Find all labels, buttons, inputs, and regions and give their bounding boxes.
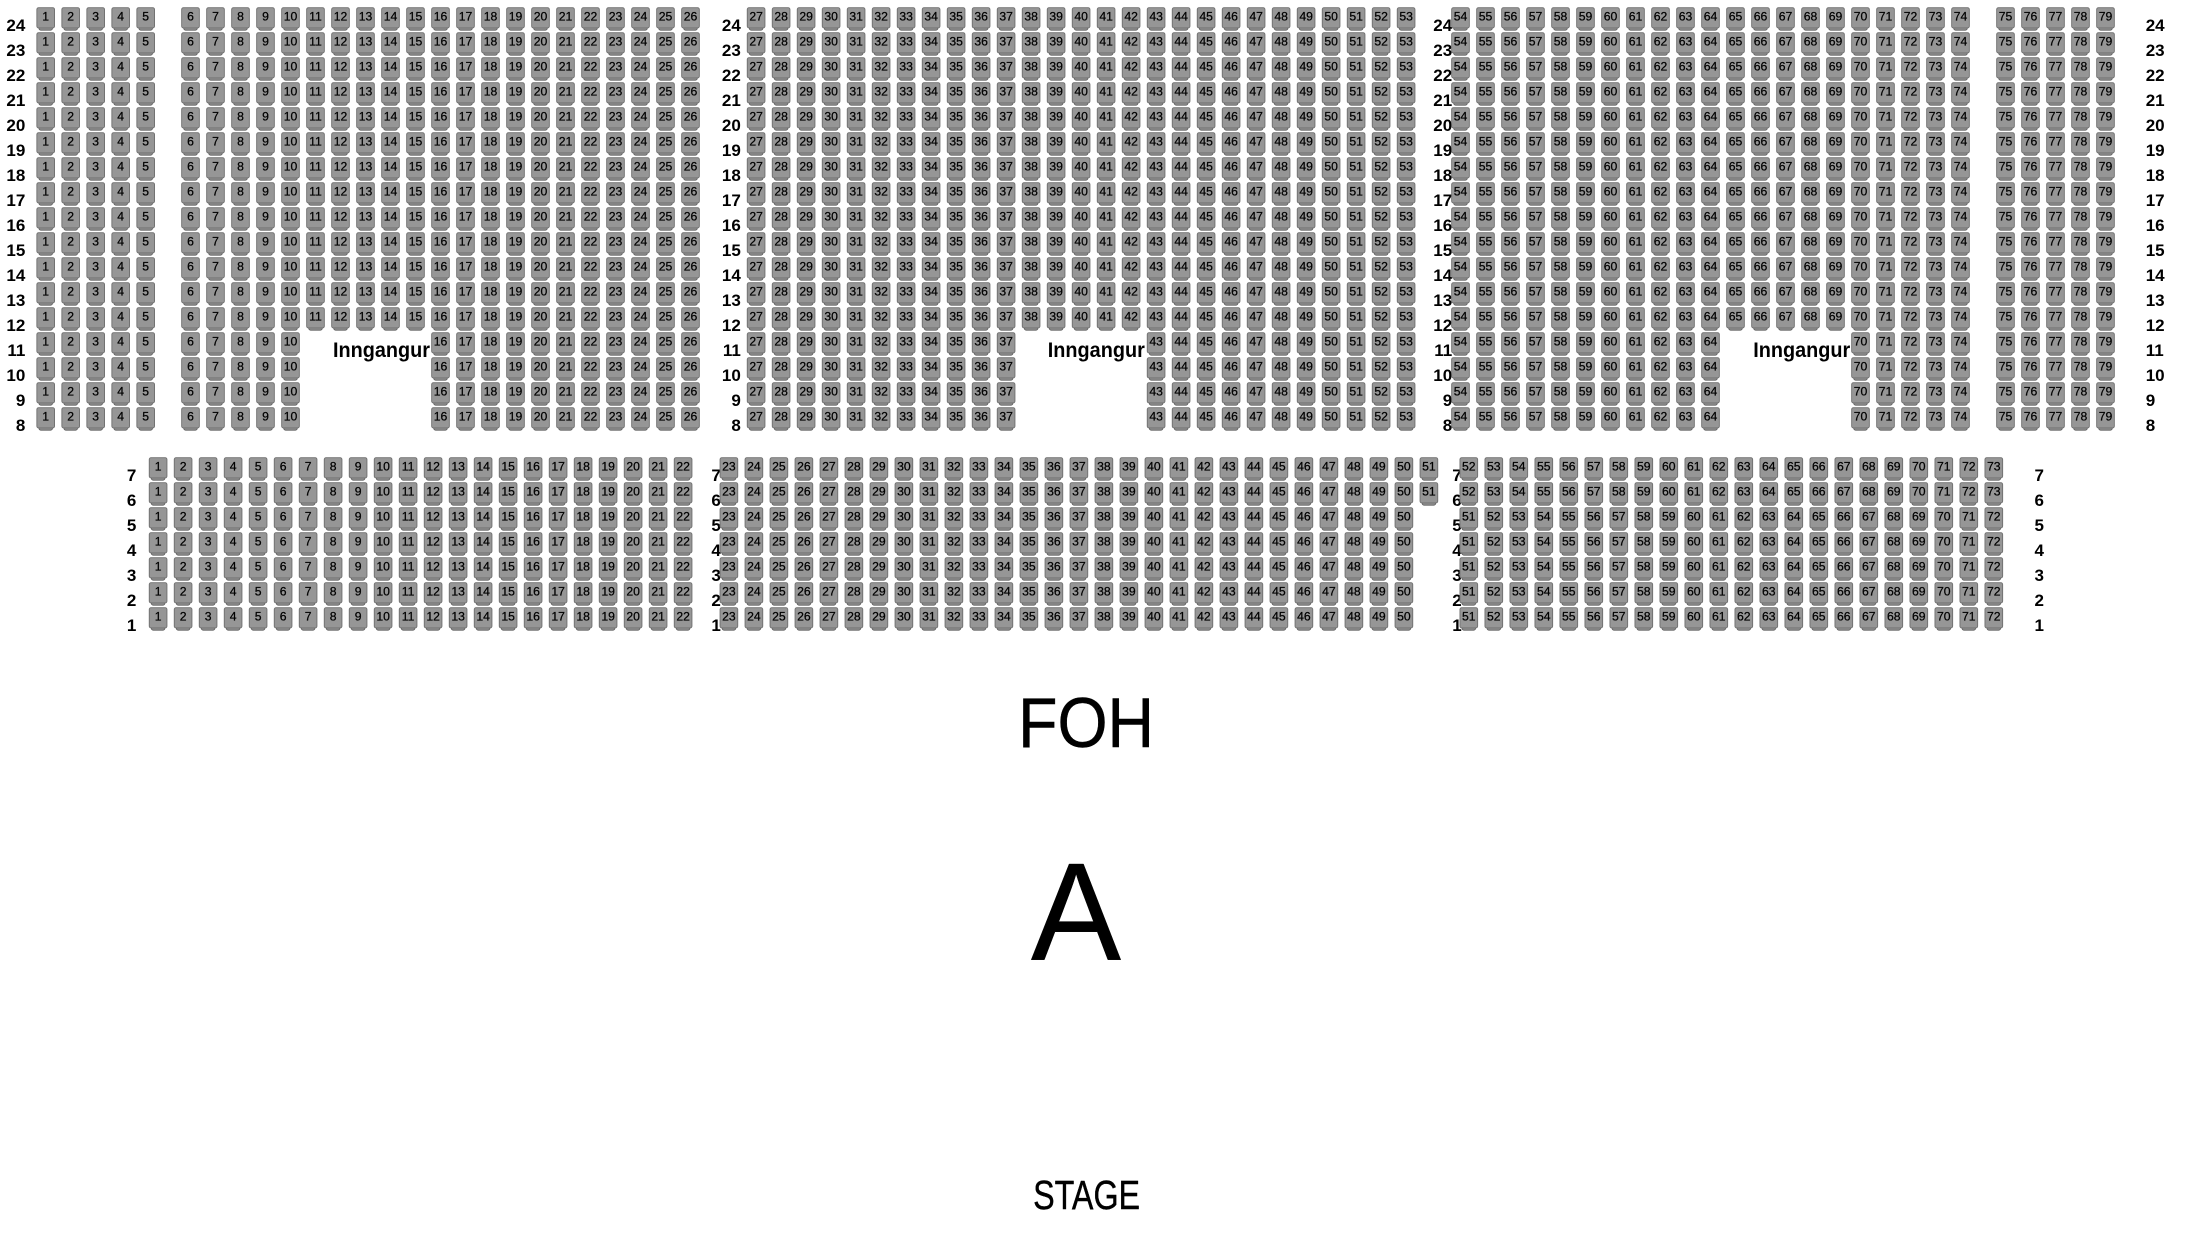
svg-text:9: 9 [262,85,269,99]
svg-text:76: 76 [2024,285,2038,299]
svg-text:20: 20 [534,410,548,424]
svg-text:40: 40 [1074,235,1088,249]
svg-text:23: 23 [609,335,623,349]
svg-text:11: 11 [309,85,322,99]
svg-text:50: 50 [1324,185,1338,199]
svg-text:13: 13 [2146,291,2165,310]
svg-text:32: 32 [947,485,961,499]
svg-text:79: 79 [2099,235,2113,249]
svg-text:67: 67 [1779,60,1793,74]
svg-text:65: 65 [1729,185,1743,199]
svg-text:75: 75 [1999,260,2013,274]
svg-text:34: 34 [997,610,1011,624]
svg-text:6: 6 [187,260,194,274]
svg-text:57: 57 [1529,185,1543,199]
svg-text:55: 55 [1479,410,1493,424]
svg-text:48: 48 [1347,585,1361,599]
svg-text:3: 3 [205,610,212,624]
svg-text:62: 62 [1654,10,1668,24]
svg-text:29: 29 [799,285,813,299]
svg-text:71: 71 [1937,460,1951,474]
svg-text:47: 47 [1322,510,1336,524]
svg-text:8: 8 [237,385,244,399]
svg-text:68: 68 [1862,485,1876,499]
svg-text:2: 2 [67,110,74,124]
svg-text:78: 78 [2074,35,2088,49]
svg-text:4: 4 [117,285,124,299]
svg-text:77: 77 [2049,60,2063,74]
svg-text:62: 62 [1654,410,1668,424]
svg-text:42: 42 [1197,485,1211,499]
svg-text:31: 31 [849,285,863,299]
svg-text:37: 37 [999,210,1013,224]
svg-text:19: 19 [509,35,523,49]
svg-text:33: 33 [972,485,986,499]
svg-text:46: 46 [1224,235,1238,249]
svg-text:66: 66 [1754,110,1768,124]
svg-text:26: 26 [797,610,811,624]
svg-text:67: 67 [1779,10,1793,24]
svg-text:3: 3 [92,135,99,149]
svg-text:12: 12 [334,235,348,249]
svg-text:71: 71 [1879,135,1893,149]
svg-text:62: 62 [1654,310,1668,324]
svg-text:24: 24 [634,10,648,24]
svg-text:68: 68 [1804,135,1818,149]
svg-text:23: 23 [609,160,623,174]
svg-text:75: 75 [1999,110,2013,124]
svg-text:56: 56 [1504,310,1518,324]
svg-text:30: 30 [824,360,838,374]
svg-text:6: 6 [187,35,194,49]
svg-text:17: 17 [459,110,473,124]
svg-text:39: 39 [1049,135,1063,149]
svg-text:55: 55 [1537,485,1551,499]
svg-text:56: 56 [1587,560,1601,574]
svg-text:74: 74 [1954,385,1968,399]
svg-text:24: 24 [747,485,761,499]
svg-text:47: 47 [1322,485,1336,499]
svg-text:27: 27 [822,510,836,524]
svg-text:41: 41 [1099,260,1113,274]
svg-text:18: 18 [484,210,498,224]
svg-text:71: 71 [1879,410,1893,424]
svg-text:34: 34 [997,535,1011,549]
svg-text:70: 70 [1854,285,1868,299]
svg-text:30: 30 [824,10,838,24]
svg-text:59: 59 [1579,360,1593,374]
svg-text:9: 9 [262,360,269,374]
svg-text:47: 47 [1322,585,1336,599]
svg-text:45: 45 [1199,335,1213,349]
svg-text:71: 71 [1962,535,1976,549]
svg-text:48: 48 [1274,235,1288,249]
svg-text:62: 62 [1654,110,1668,124]
svg-text:31: 31 [849,235,863,249]
svg-text:8: 8 [237,335,244,349]
svg-text:65: 65 [1729,85,1743,99]
svg-text:40: 40 [1074,110,1088,124]
svg-text:70: 70 [1854,135,1868,149]
svg-text:30: 30 [824,410,838,424]
svg-text:12: 12 [426,510,440,524]
svg-text:70: 70 [1854,410,1868,424]
svg-text:3: 3 [127,566,136,585]
svg-text:10: 10 [376,460,390,474]
svg-text:29: 29 [799,10,813,24]
svg-text:65: 65 [1812,610,1826,624]
svg-text:7: 7 [711,466,720,485]
svg-text:29: 29 [799,235,813,249]
svg-text:12: 12 [426,535,440,549]
svg-text:3: 3 [92,310,99,324]
svg-text:45: 45 [1272,485,1286,499]
svg-text:20: 20 [534,135,548,149]
svg-text:29: 29 [799,60,813,74]
svg-text:43: 43 [1149,360,1163,374]
svg-text:1: 1 [42,360,49,374]
svg-text:61: 61 [1629,335,1643,349]
svg-text:7: 7 [212,310,219,324]
svg-text:59: 59 [1662,585,1676,599]
svg-text:20: 20 [626,560,640,574]
svg-text:58: 58 [1554,185,1568,199]
svg-text:61: 61 [1629,360,1643,374]
svg-text:77: 77 [2049,335,2063,349]
svg-text:14: 14 [2146,266,2165,285]
svg-text:29: 29 [799,160,813,174]
svg-text:24: 24 [634,235,648,249]
svg-text:46: 46 [1224,385,1238,399]
svg-text:29: 29 [799,35,813,49]
svg-text:23: 23 [609,210,623,224]
svg-text:15: 15 [409,35,423,49]
svg-text:38: 38 [1024,135,1038,149]
svg-text:22: 22 [584,160,598,174]
svg-text:44: 44 [1174,185,1188,199]
svg-text:55: 55 [1479,260,1493,274]
svg-text:48: 48 [1347,510,1361,524]
svg-text:27: 27 [749,135,763,149]
svg-text:49: 49 [1299,110,1313,124]
svg-text:61: 61 [1629,410,1643,424]
svg-text:6: 6 [711,491,720,510]
svg-text:8: 8 [237,310,244,324]
svg-text:36: 36 [974,335,988,349]
svg-text:9: 9 [262,160,269,174]
svg-text:65: 65 [1812,560,1826,574]
svg-text:45: 45 [1199,35,1213,49]
svg-text:64: 64 [1787,610,1801,624]
svg-text:57: 57 [1612,560,1626,574]
svg-text:41: 41 [1172,535,1186,549]
svg-text:46: 46 [1224,210,1238,224]
svg-text:46: 46 [1224,360,1238,374]
svg-text:26: 26 [797,560,811,574]
svg-text:24: 24 [634,385,648,399]
svg-text:48: 48 [1274,35,1288,49]
svg-text:45: 45 [1199,210,1213,224]
svg-text:8: 8 [237,35,244,49]
svg-text:73: 73 [1929,260,1943,274]
svg-text:6: 6 [280,510,287,524]
svg-text:11: 11 [309,310,322,324]
svg-text:67: 67 [1862,610,1876,624]
svg-text:24: 24 [634,135,648,149]
svg-text:38: 38 [1097,485,1111,499]
svg-text:16: 16 [434,185,448,199]
svg-text:8: 8 [330,460,337,474]
svg-text:2: 2 [67,285,74,299]
svg-text:37: 37 [999,285,1013,299]
svg-text:64: 64 [1704,285,1718,299]
svg-text:28: 28 [774,385,788,399]
svg-text:67: 67 [1779,185,1793,199]
svg-text:22: 22 [584,285,598,299]
svg-text:48: 48 [1347,610,1361,624]
svg-text:25: 25 [659,110,673,124]
svg-text:36: 36 [974,410,988,424]
svg-text:77: 77 [2049,285,2063,299]
svg-text:27: 27 [822,585,836,599]
svg-text:1: 1 [42,260,49,274]
svg-text:43: 43 [1149,335,1163,349]
svg-text:5: 5 [127,516,136,535]
svg-text:Inngangur: Inngangur [1048,339,1145,362]
svg-text:54: 54 [1537,585,1551,599]
svg-text:32: 32 [874,285,888,299]
svg-text:43: 43 [1149,185,1163,199]
svg-text:52: 52 [1374,310,1388,324]
svg-text:9: 9 [355,560,362,574]
svg-text:78: 78 [2074,60,2088,74]
svg-text:11: 11 [309,35,322,49]
svg-text:22: 22 [584,310,598,324]
svg-text:76: 76 [2024,60,2038,74]
svg-text:18: 18 [576,610,590,624]
svg-text:45: 45 [1199,260,1213,274]
svg-text:STAGE: STAGE [1033,1172,1140,1218]
svg-text:70: 70 [1854,60,1868,74]
svg-text:40: 40 [1147,535,1161,549]
svg-text:6: 6 [187,160,194,174]
svg-text:57: 57 [1612,535,1626,549]
svg-text:66: 66 [1754,185,1768,199]
svg-text:77: 77 [2049,10,2063,24]
svg-text:54: 54 [1454,310,1468,324]
svg-text:71: 71 [1962,510,1976,524]
svg-text:54: 54 [1454,410,1468,424]
svg-text:74: 74 [1954,260,1968,274]
svg-text:61: 61 [1629,35,1643,49]
svg-text:14: 14 [722,266,741,285]
svg-text:21: 21 [651,585,665,599]
svg-text:68: 68 [1887,535,1901,549]
svg-text:18: 18 [484,360,498,374]
svg-text:79: 79 [2099,410,2113,424]
svg-text:1: 1 [155,535,162,549]
svg-text:56: 56 [1504,360,1518,374]
svg-text:73: 73 [1929,310,1943,324]
svg-text:79: 79 [2099,360,2113,374]
svg-text:68: 68 [1862,460,1876,474]
svg-text:17: 17 [459,185,473,199]
svg-text:70: 70 [1854,110,1868,124]
svg-text:39: 39 [1122,610,1136,624]
svg-text:12: 12 [334,310,348,324]
svg-text:73: 73 [1929,85,1943,99]
svg-text:18: 18 [576,510,590,524]
svg-text:19: 19 [601,535,615,549]
svg-text:3: 3 [205,585,212,599]
svg-text:28: 28 [774,35,788,49]
svg-text:62: 62 [1737,510,1751,524]
svg-text:25: 25 [659,235,673,249]
svg-text:42: 42 [1124,60,1138,74]
svg-text:19: 19 [509,160,523,174]
svg-text:42: 42 [1197,510,1211,524]
svg-text:74: 74 [1954,285,1968,299]
svg-text:19: 19 [601,510,615,524]
svg-text:16: 16 [434,260,448,274]
svg-text:65: 65 [1729,10,1743,24]
svg-text:68: 68 [1887,610,1901,624]
svg-text:68: 68 [1804,60,1818,74]
svg-text:64: 64 [1704,310,1718,324]
svg-text:48: 48 [1274,135,1288,149]
svg-text:50: 50 [1397,585,1411,599]
svg-text:79: 79 [2099,10,2113,24]
svg-text:7: 7 [212,260,219,274]
svg-text:9: 9 [262,285,269,299]
svg-text:18: 18 [484,35,498,49]
svg-text:65: 65 [1729,160,1743,174]
svg-text:45: 45 [1272,610,1286,624]
svg-text:26: 26 [684,85,698,99]
svg-text:39: 39 [1122,535,1136,549]
svg-text:28: 28 [774,285,788,299]
svg-text:36: 36 [974,110,988,124]
svg-text:6: 6 [187,235,194,249]
svg-text:27: 27 [822,485,836,499]
svg-text:52: 52 [1374,360,1388,374]
svg-text:53: 53 [1399,285,1413,299]
svg-text:6: 6 [280,560,287,574]
svg-text:79: 79 [2099,335,2113,349]
svg-text:5: 5 [2035,516,2044,535]
svg-text:18: 18 [722,166,741,185]
svg-text:29: 29 [799,260,813,274]
svg-text:62: 62 [1712,485,1726,499]
svg-text:64: 64 [1704,110,1718,124]
svg-text:7: 7 [212,385,219,399]
svg-text:27: 27 [749,35,763,49]
svg-text:69: 69 [1829,85,1843,99]
svg-text:1: 1 [155,610,162,624]
svg-text:7: 7 [212,10,219,24]
svg-text:28: 28 [774,310,788,324]
svg-text:50: 50 [1324,10,1338,24]
svg-text:48: 48 [1274,160,1288,174]
svg-text:33: 33 [899,110,913,124]
svg-text:63: 63 [1679,110,1693,124]
svg-text:52: 52 [1374,135,1388,149]
svg-text:66: 66 [1754,285,1768,299]
svg-text:45: 45 [1199,360,1213,374]
svg-text:47: 47 [1249,385,1263,399]
svg-text:59: 59 [1579,85,1593,99]
svg-text:56: 56 [1504,10,1518,24]
svg-text:63: 63 [1679,260,1693,274]
svg-text:34: 34 [924,335,938,349]
svg-text:14: 14 [384,135,398,149]
svg-text:58: 58 [1612,460,1626,474]
svg-text:50: 50 [1324,235,1338,249]
svg-text:2: 2 [180,585,187,599]
svg-text:16: 16 [434,285,448,299]
svg-text:75: 75 [1999,410,2013,424]
svg-text:44: 44 [1247,510,1261,524]
svg-text:8: 8 [330,585,337,599]
svg-text:49: 49 [1372,585,1386,599]
svg-text:16: 16 [526,610,540,624]
svg-text:14: 14 [476,485,490,499]
svg-text:29: 29 [872,485,886,499]
svg-text:64: 64 [1787,560,1801,574]
svg-text:43: 43 [1149,385,1163,399]
svg-text:66: 66 [1754,210,1768,224]
svg-text:7: 7 [212,335,219,349]
svg-text:48: 48 [1347,460,1361,474]
svg-text:16: 16 [434,160,448,174]
svg-text:29: 29 [872,460,886,474]
svg-text:35: 35 [949,160,963,174]
svg-text:71: 71 [1879,260,1893,274]
svg-text:8: 8 [237,185,244,199]
svg-text:73: 73 [1929,335,1943,349]
svg-text:1: 1 [711,616,720,635]
svg-text:57: 57 [1612,585,1626,599]
svg-text:4: 4 [230,535,237,549]
svg-text:39: 39 [1049,285,1063,299]
svg-text:22: 22 [584,10,598,24]
svg-text:43: 43 [1149,110,1163,124]
svg-text:52: 52 [1374,185,1388,199]
svg-text:11: 11 [309,285,322,299]
svg-text:3: 3 [205,510,212,524]
svg-text:60: 60 [1687,585,1701,599]
svg-text:5: 5 [142,160,149,174]
svg-text:37: 37 [999,385,1013,399]
svg-text:18: 18 [484,410,498,424]
svg-text:53: 53 [1399,260,1413,274]
svg-text:74: 74 [1954,360,1968,374]
svg-text:53: 53 [1399,210,1413,224]
svg-text:25: 25 [772,610,786,624]
svg-text:41: 41 [1172,485,1186,499]
svg-text:55: 55 [1479,210,1493,224]
svg-text:27: 27 [749,335,763,349]
svg-text:1: 1 [42,60,49,74]
svg-text:54: 54 [1454,235,1468,249]
svg-text:55: 55 [1479,335,1493,349]
svg-text:76: 76 [2024,335,2038,349]
svg-text:72: 72 [1987,510,2001,524]
svg-text:13: 13 [359,10,373,24]
svg-text:31: 31 [922,535,936,549]
svg-text:76: 76 [2024,110,2038,124]
svg-text:69: 69 [1912,560,1926,574]
